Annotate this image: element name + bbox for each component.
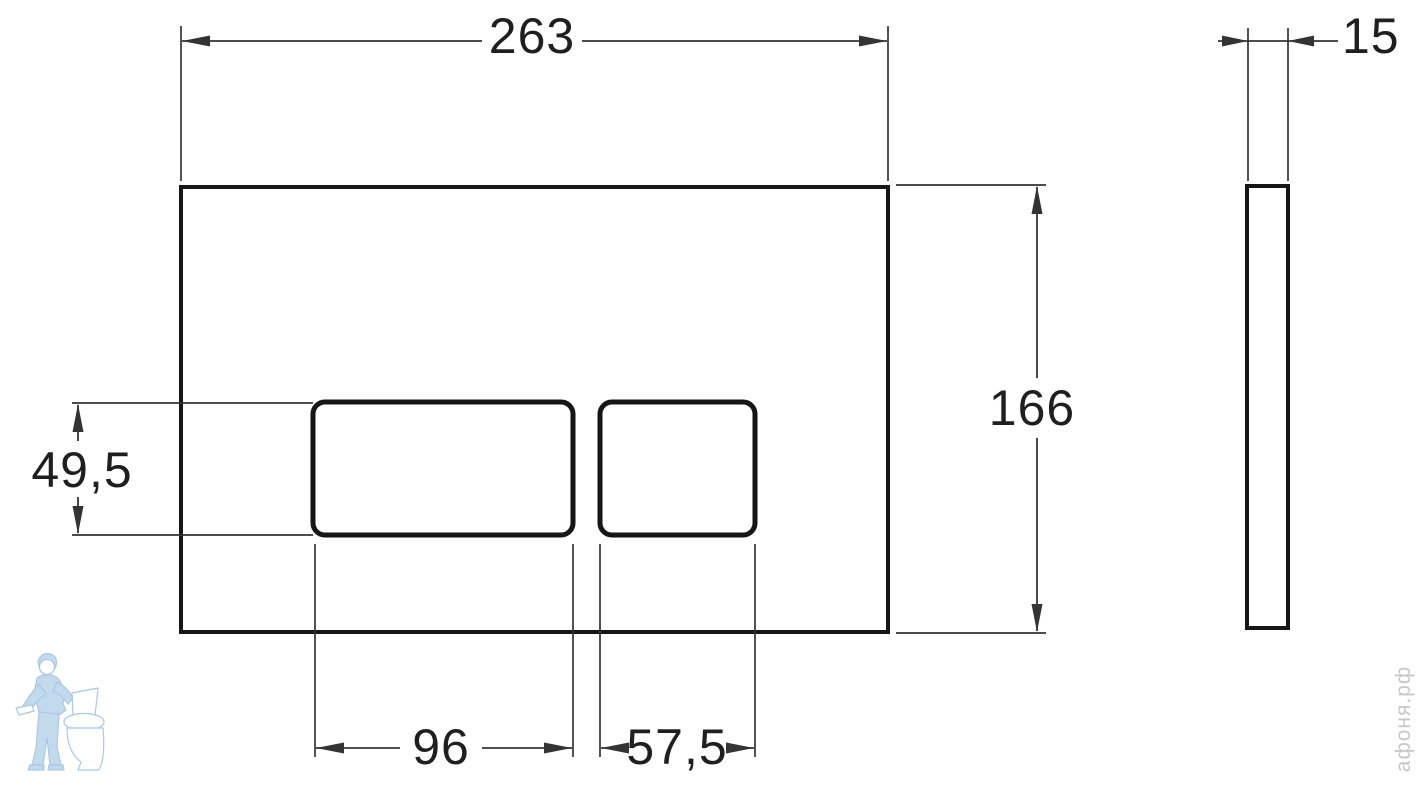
arrowhead-left: [1222, 36, 1248, 47]
arrowhead-top: [1032, 186, 1043, 214]
front-view: [181, 187, 888, 632]
arrowhead-bottom: [73, 506, 84, 534]
overall-height-label: 166: [989, 380, 1075, 436]
large-button-width-label: 96: [412, 719, 470, 775]
side-view: [1247, 186, 1288, 628]
brand-watermark-text: афоня.рф: [1392, 666, 1416, 772]
arrowhead-right: [1288, 36, 1314, 47]
arrowhead-left: [601, 743, 629, 754]
large-flush-button-outline: [313, 402, 573, 535]
arrowhead-bottom: [1032, 604, 1043, 632]
wrench-icon: [16, 705, 34, 715]
arrowhead-right: [859, 36, 887, 47]
plumber-with-toilet-icon: [10, 648, 122, 780]
technical-drawing-canvas: 263 15 166 49,5: [0, 0, 1420, 785]
arrowhead-left: [316, 743, 344, 754]
plumber-head: [40, 660, 55, 675]
buttons-height-label: 49,5: [31, 442, 132, 498]
thickness-dimension: 15: [1218, 8, 1400, 181]
large-button-width-dimension: 96: [315, 544, 573, 775]
front-plate-outline: [181, 187, 888, 632]
plumber-legs: [32, 712, 61, 765]
small-flush-button-outline: [600, 402, 755, 535]
side-plate-outline: [1247, 186, 1288, 628]
toilet-bowl: [67, 728, 104, 770]
overall-width-label: 263: [489, 8, 575, 64]
arrowhead-right: [726, 743, 754, 754]
arrowhead-left: [182, 36, 210, 47]
small-button-width-dimension: 57,5: [600, 544, 755, 775]
buttons-height-dimension: 49,5: [31, 403, 313, 535]
flush-plate-dimension-drawing: 263 15 166 49,5: [0, 0, 1420, 785]
small-button-width-label: 57,5: [626, 719, 727, 775]
arrowhead-right: [544, 743, 572, 754]
overall-width-dimension: 263: [181, 8, 888, 181]
arrowhead-top: [73, 404, 84, 432]
plumber-shoe-right: [48, 765, 64, 770]
overall-height-dimension: 166: [896, 185, 1075, 633]
plumber-shoe-left: [28, 765, 44, 770]
thickness-label: 15: [1342, 8, 1400, 64]
